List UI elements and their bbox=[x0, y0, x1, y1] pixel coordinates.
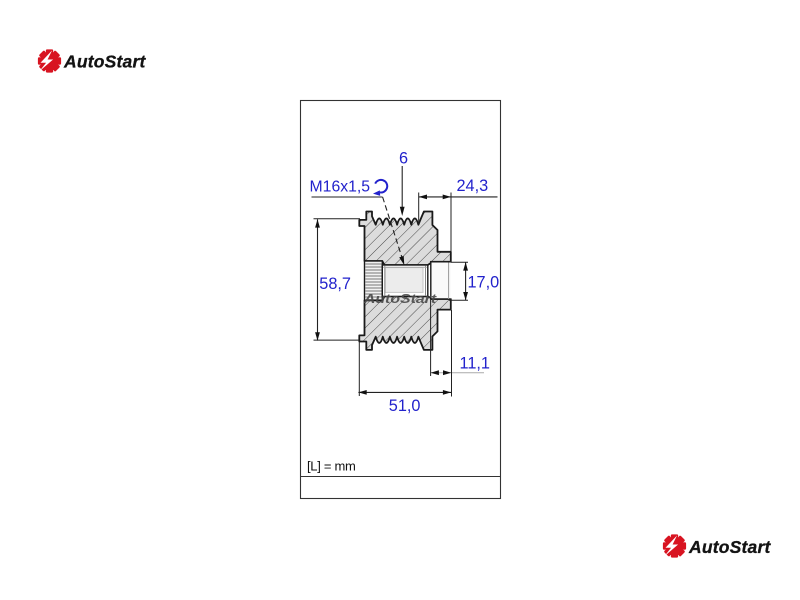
svg-text:[L] = mm: [L] = mm bbox=[307, 458, 356, 473]
svg-text:17,0: 17,0 bbox=[468, 274, 500, 292]
svg-text:24,3: 24,3 bbox=[457, 177, 489, 195]
svg-text:58,7: 58,7 bbox=[319, 275, 351, 293]
svg-text:AutoStart: AutoStart bbox=[363, 293, 438, 307]
svg-text:11,1: 11,1 bbox=[460, 354, 490, 372]
svg-text:AutoStart: AutoStart bbox=[63, 52, 146, 72]
svg-text:6: 6 bbox=[399, 150, 408, 168]
svg-text:51,0: 51,0 bbox=[389, 397, 421, 415]
svg-text:AutoStart: AutoStart bbox=[688, 537, 771, 557]
svg-text:M16x1,5: M16x1,5 bbox=[310, 179, 371, 196]
